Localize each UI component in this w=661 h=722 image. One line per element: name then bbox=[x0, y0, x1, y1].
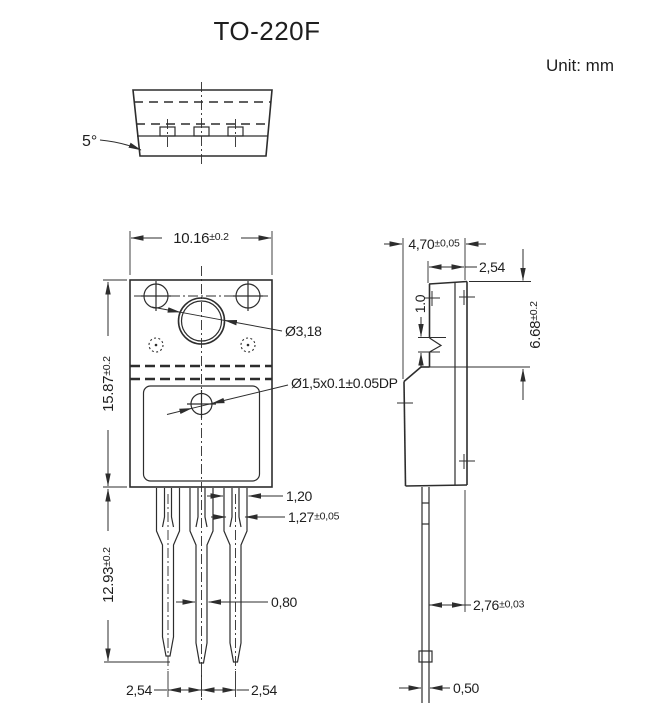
tab-feature-circle bbox=[233, 281, 263, 311]
package-body-front bbox=[130, 280, 272, 487]
ejector-pin-mark bbox=[241, 338, 255, 352]
svg-text:2,54: 2,54 bbox=[251, 682, 278, 698]
ejector-pin-mark bbox=[149, 338, 163, 352]
centerline-ticks bbox=[397, 290, 475, 469]
draft-angle-leader bbox=[100, 140, 141, 150]
dim-lead-width: 0,80 bbox=[176, 594, 298, 610]
draft-angle-label: 5° bbox=[82, 133, 97, 150]
front-view: 10.16±0.2 15.87±0.2 12.93±0.2 bbox=[100, 230, 398, 700]
svg-text:6.68±0.2: 6.68±0.2 bbox=[527, 301, 544, 349]
svg-text:2,54: 2,54 bbox=[126, 682, 153, 698]
svg-text:0,50: 0,50 bbox=[453, 680, 480, 696]
dim-lead-shoulder-width: 1,20 bbox=[207, 488, 313, 504]
dim-lead-length: 12.93±0.2 bbox=[100, 489, 170, 662]
dim-lead-setback: 2,76±0,03 bbox=[430, 490, 525, 613]
svg-text:10.16±0.2: 10.16±0.2 bbox=[173, 230, 229, 247]
dim-body-width: 10.16±0.2 bbox=[130, 230, 272, 275]
dimple-profile bbox=[430, 338, 442, 352]
tab-feature-circle bbox=[141, 281, 171, 311]
svg-text:1.0: 1.0 bbox=[412, 294, 428, 313]
svg-text:1,27±0,05: 1,27±0,05 bbox=[288, 509, 340, 525]
svg-text:12.93±0.2: 12.93±0.2 bbox=[100, 547, 117, 603]
lead-side bbox=[419, 487, 432, 703]
dim-body-thickness: 4,70±0,05 bbox=[384, 236, 486, 379]
top-view: 5° bbox=[82, 82, 272, 164]
dim-tab-thickness: 2,54 bbox=[428, 259, 506, 283]
dim-mounting-hole: Ø3,18 bbox=[152, 307, 322, 339]
unit-label: Unit: mm bbox=[546, 56, 614, 75]
datasheet-package-drawing: TO-220F Unit: mm 5° bbox=[0, 0, 661, 722]
svg-text:1,20: 1,20 bbox=[286, 488, 313, 504]
dim-body-height: 15.87±0.2 bbox=[100, 280, 127, 487]
svg-text:0,80: 0,80 bbox=[271, 594, 298, 610]
dim-lead-pitch: 2,54 2,54 bbox=[126, 671, 278, 698]
svg-text:15.87±0.2: 15.87±0.2 bbox=[100, 356, 117, 412]
svg-text:Ø3,18: Ø3,18 bbox=[285, 323, 322, 339]
svg-text:2,76±0,03: 2,76±0,03 bbox=[473, 597, 525, 613]
dim-lead-thickness: 0,50 bbox=[399, 680, 480, 696]
svg-text:4,70±0,05: 4,70±0,05 bbox=[408, 236, 460, 252]
svg-text:2,54: 2,54 bbox=[479, 259, 506, 275]
page-title: TO-220F bbox=[213, 16, 320, 46]
svg-text:Ø1,5x0.1±0.05DP: Ø1,5x0.1±0.05DP bbox=[291, 375, 398, 391]
side-view: 4,70±0,05 2,54 1.0 6.68±0.2 bbox=[384, 236, 544, 703]
technical-drawing: TO-220F Unit: mm 5° bbox=[0, 0, 661, 722]
